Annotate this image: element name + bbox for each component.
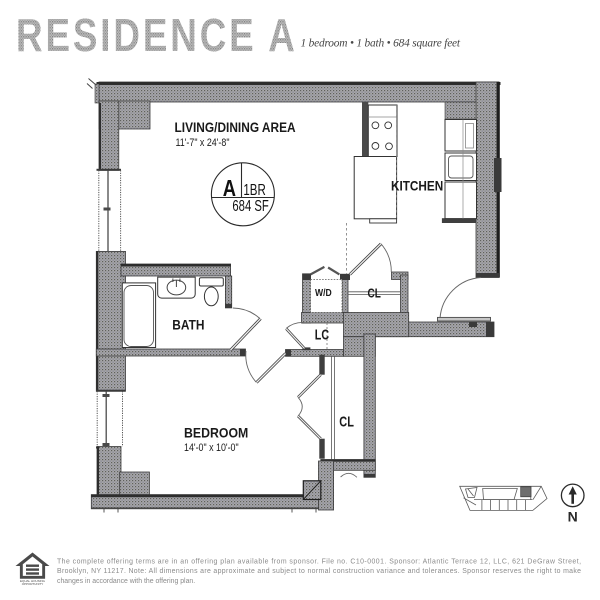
svg-text:RESIDENCE A: RESIDENCE A (16, 9, 298, 61)
svg-text:CL: CL (339, 413, 354, 430)
svg-text:The complete offering terms ar: The complete offering terms are in an of… (57, 559, 581, 566)
svg-text:1BR: 1BR (243, 180, 265, 198)
svg-text:LIVING/DINING AREA: LIVING/DINING AREA (175, 119, 297, 135)
svg-text:684 SF: 684 SF (232, 197, 268, 214)
svg-text:LC: LC (315, 326, 329, 343)
svg-text:1 bedroom • 1 bath • 684 squar: 1 bedroom • 1 bath • 684 square feet (301, 38, 461, 50)
svg-text:Brooklyn, NY 11217. Note: All: Brooklyn, NY 11217. Note: All dimensions… (57, 568, 581, 575)
svg-text:BATH: BATH (172, 316, 204, 332)
svg-text:11'-7" x 24'-8": 11'-7" x 24'-8" (176, 137, 230, 149)
svg-text:changes in accordance with the: changes in accordance with the offering … (57, 578, 195, 585)
svg-text:W/D: W/D (315, 287, 332, 299)
svg-text:KITCHEN: KITCHEN (391, 177, 443, 193)
svg-text:OPPORTUNITY: OPPORTUNITY (22, 582, 44, 586)
svg-text:N: N (568, 509, 578, 525)
svg-text:14'-0" x 10'-0": 14'-0" x 10'-0" (184, 442, 239, 454)
svg-text:CL: CL (368, 287, 381, 300)
svg-text:BEDROOM: BEDROOM (184, 425, 248, 441)
